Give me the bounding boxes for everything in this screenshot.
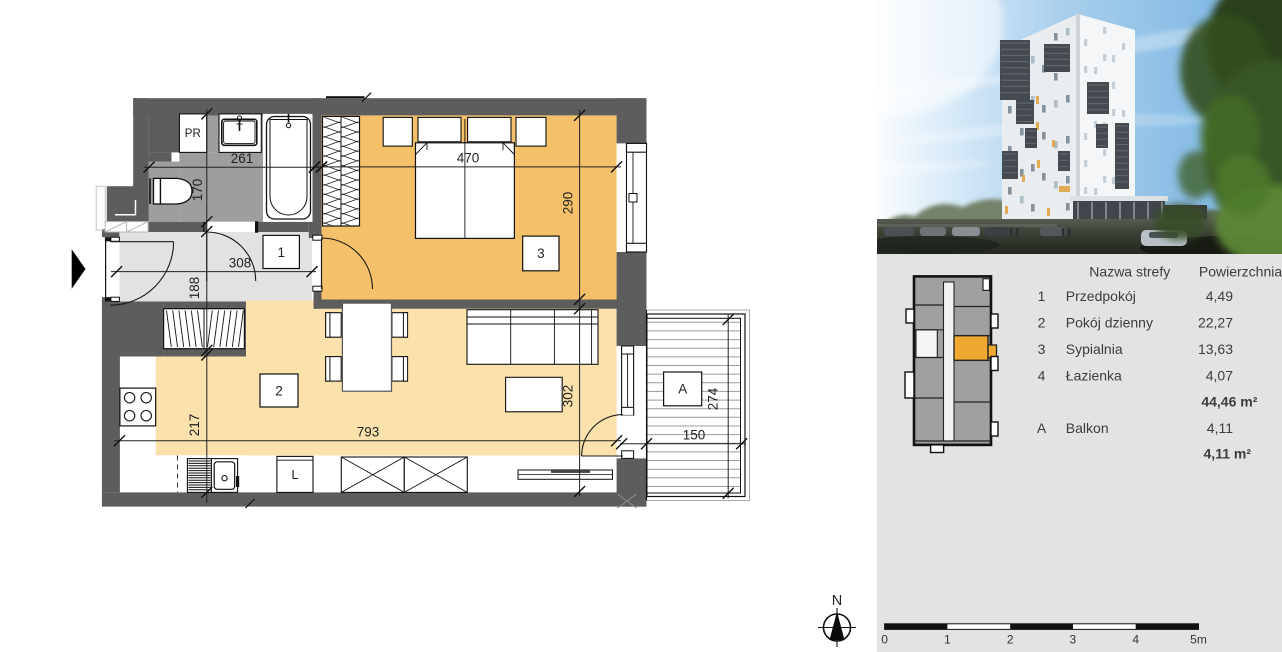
svg-text:2: 2	[1007, 633, 1014, 647]
svg-text:Przedpokój: Przedpokój	[1066, 288, 1136, 304]
svg-text:A: A	[678, 382, 687, 397]
svg-text:217: 217	[187, 414, 202, 437]
svg-text:2: 2	[275, 383, 283, 398]
svg-text:170: 170	[190, 179, 205, 202]
svg-text:3: 3	[1038, 341, 1046, 357]
svg-text:Sypialnia: Sypialnia	[1066, 341, 1123, 357]
svg-text:PR: PR	[185, 128, 201, 140]
svg-text:150: 150	[683, 428, 706, 443]
svg-text:3: 3	[1070, 633, 1077, 647]
svg-text:Pokój dzienny: Pokój dzienny	[1066, 315, 1153, 331]
svg-text:793: 793	[357, 425, 380, 440]
svg-text:N: N	[832, 593, 842, 609]
svg-text:4: 4	[1132, 633, 1139, 647]
svg-text:4,11: 4,11	[1207, 420, 1233, 436]
svg-text:Balkon: Balkon	[1066, 420, 1109, 436]
svg-text:22,27: 22,27	[1198, 315, 1233, 331]
svg-text:Powierzchnia: Powierzchnia	[1199, 264, 1282, 280]
svg-text:44,46 m²: 44,46 m²	[1201, 394, 1257, 410]
svg-text:4: 4	[1038, 367, 1046, 383]
svg-text:1: 1	[944, 633, 951, 647]
svg-text:A: A	[1037, 420, 1047, 436]
svg-text:3: 3	[537, 246, 545, 261]
svg-text:188: 188	[187, 277, 202, 300]
svg-text:Nazwa strefy: Nazwa strefy	[1089, 264, 1170, 280]
svg-text:274: 274	[706, 387, 721, 410]
svg-text:261: 261	[231, 151, 254, 166]
svg-text:308: 308	[229, 255, 252, 270]
svg-text:470: 470	[457, 151, 480, 166]
svg-text:L: L	[292, 468, 299, 482]
svg-text:4,07: 4,07	[1206, 367, 1233, 383]
svg-text:302: 302	[561, 385, 576, 408]
svg-text:4,11 m²: 4,11 m²	[1204, 446, 1252, 462]
svg-text:Łazienka: Łazienka	[1066, 367, 1122, 383]
svg-text:2: 2	[1038, 315, 1046, 331]
svg-text:13,63: 13,63	[1198, 341, 1233, 357]
svg-text:1: 1	[277, 245, 285, 260]
svg-text:5m: 5m	[1190, 633, 1207, 647]
svg-text:0: 0	[881, 633, 888, 647]
svg-text:290: 290	[561, 192, 576, 215]
svg-text:4,49: 4,49	[1206, 288, 1233, 304]
svg-text:1: 1	[1038, 288, 1046, 304]
